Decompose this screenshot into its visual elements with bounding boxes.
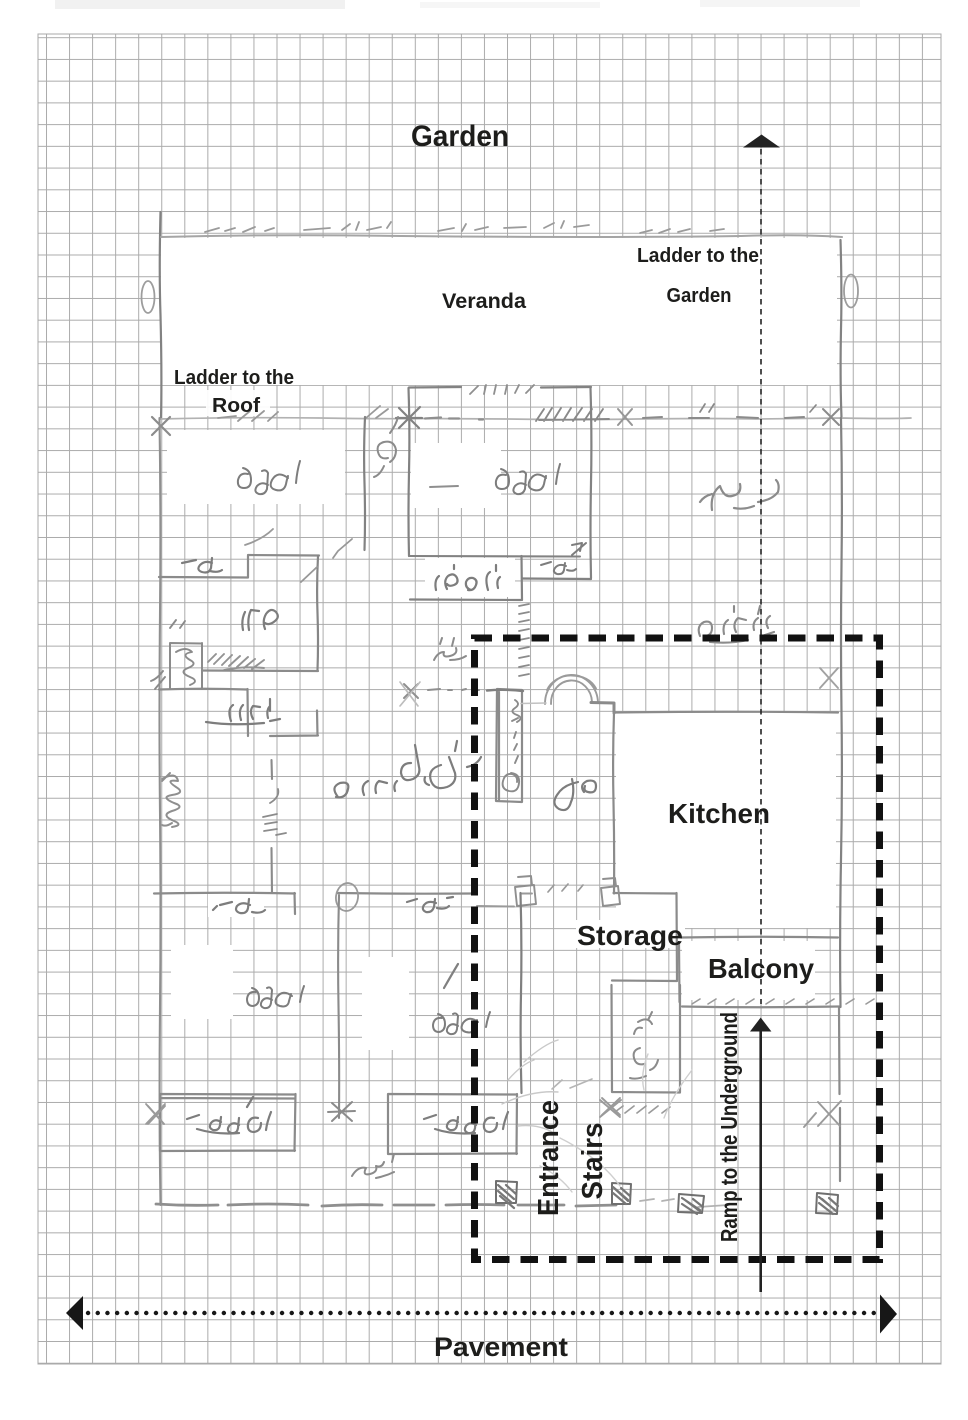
svg-text:Entrance: Entrance [533,1100,565,1216]
svg-text:Ramp to the Underground: Ramp to the Underground [716,1012,742,1242]
svg-text:Stairs: Stairs [577,1123,609,1200]
svg-text:Ladder to the: Ladder to the [174,367,294,389]
svg-text:Pavement: Pavement [434,1332,568,1362]
svg-text:Garden: Garden [667,285,732,307]
svg-text:Roof: Roof [212,395,260,417]
svg-text:Kitchen: Kitchen [668,798,770,829]
svg-text:Garden: Garden [411,120,509,153]
svg-text:Balcony: Balcony [708,953,814,984]
svg-text:Storage: Storage [577,920,683,951]
svg-text:Ladder to the: Ladder to the [637,245,759,267]
svg-text:Veranda: Veranda [442,290,526,313]
